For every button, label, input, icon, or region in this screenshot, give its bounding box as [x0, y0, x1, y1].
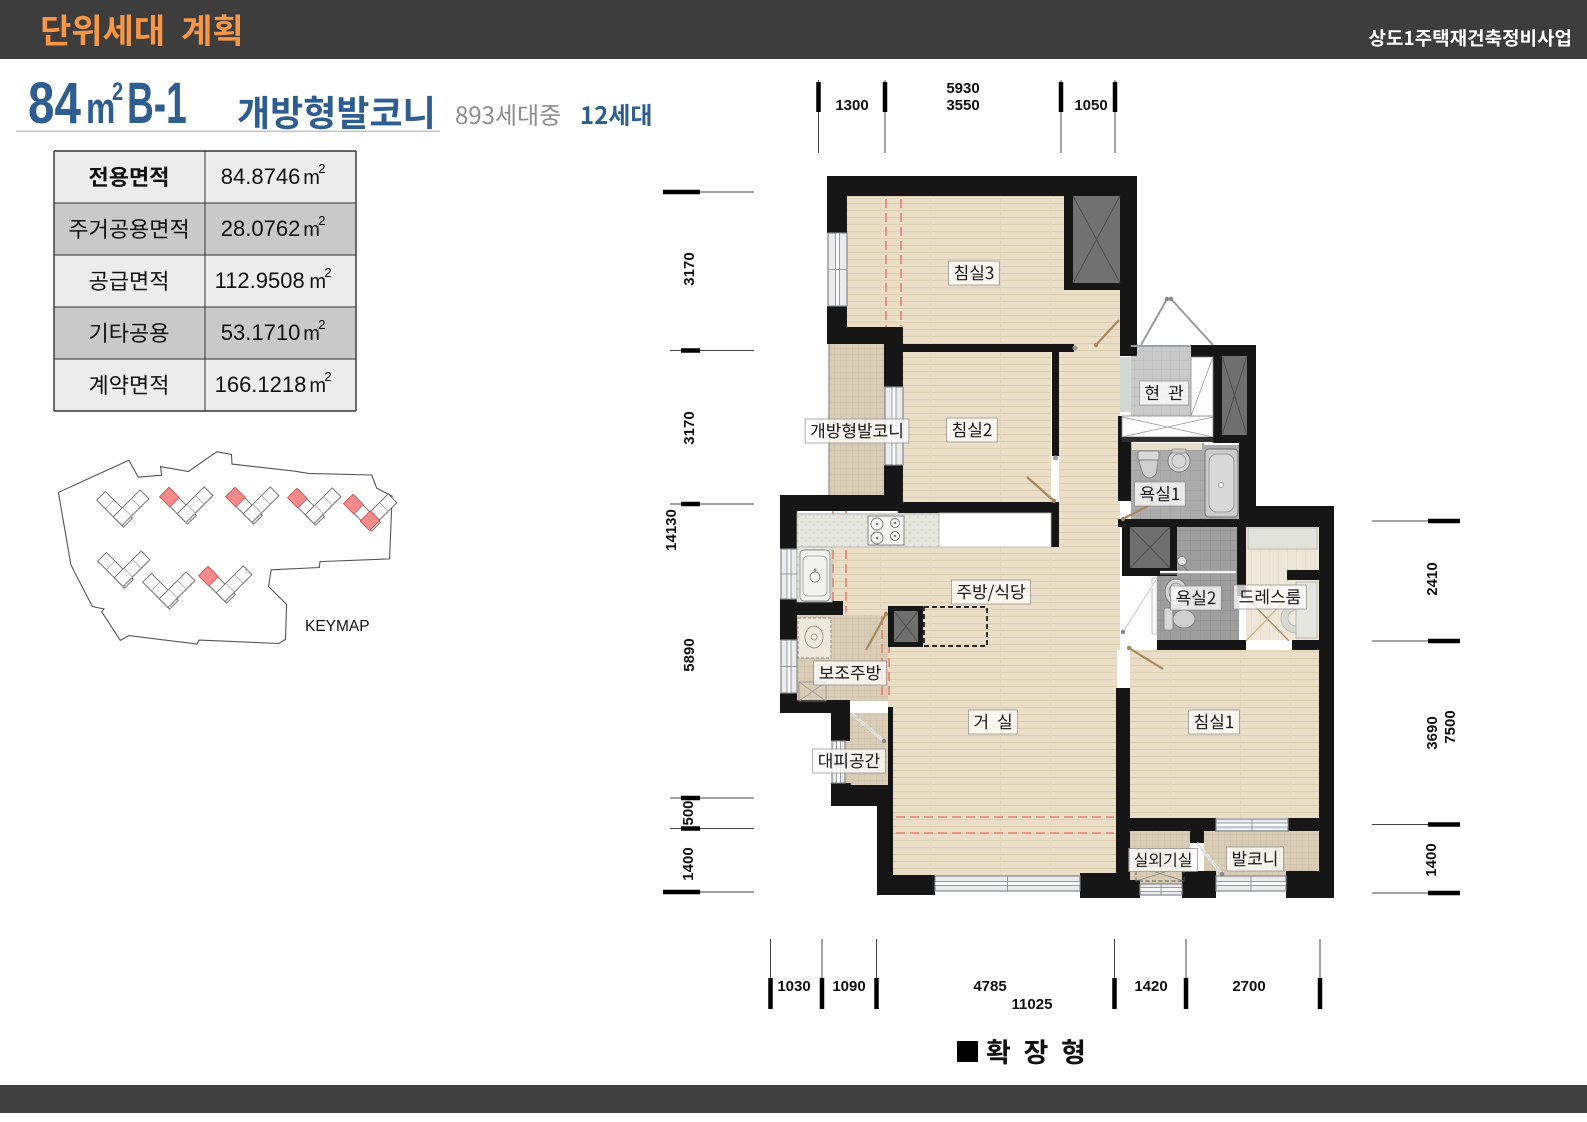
svg-text:1050: 1050 — [1074, 97, 1107, 114]
svg-text:1090: 1090 — [832, 978, 865, 995]
svg-text:2700: 2700 — [1232, 978, 1265, 995]
svg-text:3690: 3690 — [1424, 716, 1441, 749]
svg-text:5890: 5890 — [681, 638, 698, 671]
svg-text:1420: 1420 — [1134, 978, 1167, 995]
svg-text:7500: 7500 — [1442, 710, 1459, 743]
svg-text:166.1218: 166.1218 — [215, 372, 307, 397]
svg-text:53.1710: 53.1710 — [221, 320, 301, 345]
svg-text:m: m — [86, 85, 115, 134]
svg-text:84.8746: 84.8746 — [221, 164, 301, 189]
svg-text:2: 2 — [112, 78, 123, 106]
svg-text:1400: 1400 — [680, 847, 697, 880]
svg-text:1030: 1030 — [777, 978, 810, 995]
svg-text:1400: 1400 — [1423, 843, 1440, 876]
svg-text:2410: 2410 — [1424, 562, 1441, 595]
svg-text:4785: 4785 — [973, 978, 1006, 995]
svg-text:2: 2 — [324, 369, 331, 384]
svg-text:2: 2 — [318, 213, 325, 228]
svg-text:500: 500 — [680, 800, 697, 825]
svg-text:11025: 11025 — [1012, 996, 1053, 1013]
svg-text:3170: 3170 — [681, 411, 698, 444]
svg-text:14130: 14130 — [663, 509, 680, 551]
svg-text:2: 2 — [318, 161, 325, 176]
svg-text:B-1: B-1 — [127, 72, 187, 136]
svg-text:2: 2 — [324, 265, 331, 280]
svg-text:1300: 1300 — [835, 97, 868, 114]
svg-text:112.9508: 112.9508 — [215, 268, 305, 293]
svg-text:KEYMAP: KEYMAP — [305, 618, 370, 635]
svg-text:5930: 5930 — [946, 80, 979, 97]
svg-text:3550: 3550 — [946, 97, 979, 114]
svg-text:84: 84 — [28, 72, 81, 137]
svg-text:2: 2 — [318, 317, 325, 332]
svg-text:3170: 3170 — [681, 252, 698, 285]
svg-text:28.0762: 28.0762 — [221, 216, 301, 241]
